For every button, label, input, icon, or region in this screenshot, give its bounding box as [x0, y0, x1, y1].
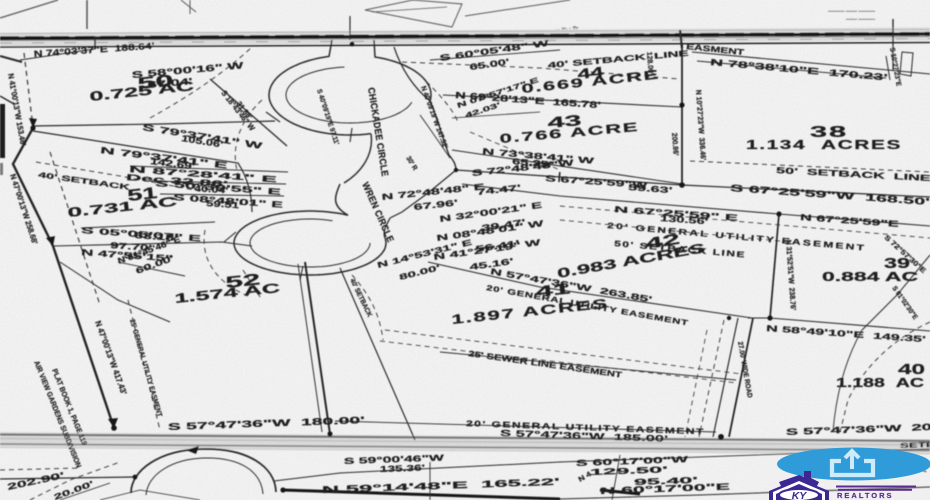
svg-text:KY: KY	[792, 490, 808, 500]
svg-text:REALTORS: REALTORS	[837, 491, 894, 500]
